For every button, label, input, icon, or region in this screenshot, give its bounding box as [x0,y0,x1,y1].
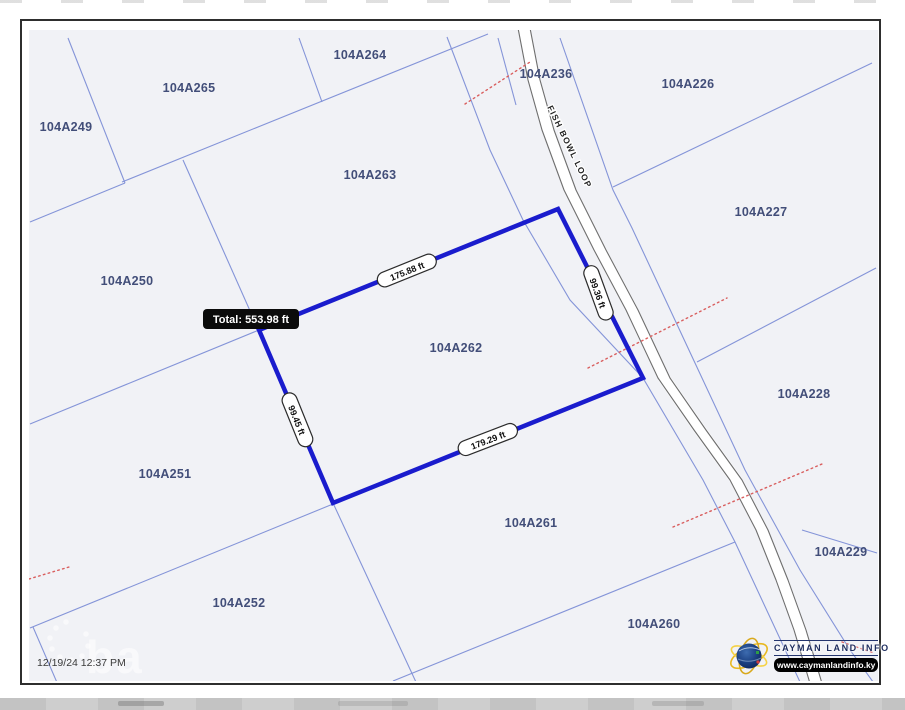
measurement-total-tooltip: Total: 553.98 ft [203,309,299,329]
parcel-label: 104A262 [430,341,483,355]
parcel-label: 104A261 [505,516,558,530]
capture-bottom-strip [0,698,905,710]
scan-artifact-marks [0,0,905,3]
tooltip-text: Total: 553.98 ft [213,314,290,326]
parcel-label: 104A227 [735,205,788,219]
parcel-label: 104A236 [520,67,573,81]
cayman-land-info-logo: CAYMAN LAND INFO www.caymanlandinfo.ky [727,630,885,682]
parcel-label: 104A252 [213,596,266,610]
parcel-label: 104A264 [334,48,387,62]
parcel-label: 104A229 [815,545,868,559]
parcel-label: 104A249 [40,120,93,134]
parcel-label: 104A260 [628,617,681,631]
parcel-label: 104A265 [163,81,216,95]
parcel-label: 104A250 [101,274,154,288]
parcel-label: 104A263 [344,168,397,182]
map-background [29,30,878,681]
globe-icon [727,631,771,681]
map-timestamp: 12/19/24 12:37 PM [37,657,126,669]
logo-url: www.caymanlandinfo.ky [774,658,878,672]
map-canvas[interactable]: 104A264104A265104A249104A263104A236104A2… [29,30,878,681]
logo-title: CAYMAN LAND INFO [774,640,878,656]
parcel-label: 104A228 [778,387,831,401]
parcel-label: 104A226 [662,77,715,91]
parcel-label: 104A251 [139,467,192,481]
